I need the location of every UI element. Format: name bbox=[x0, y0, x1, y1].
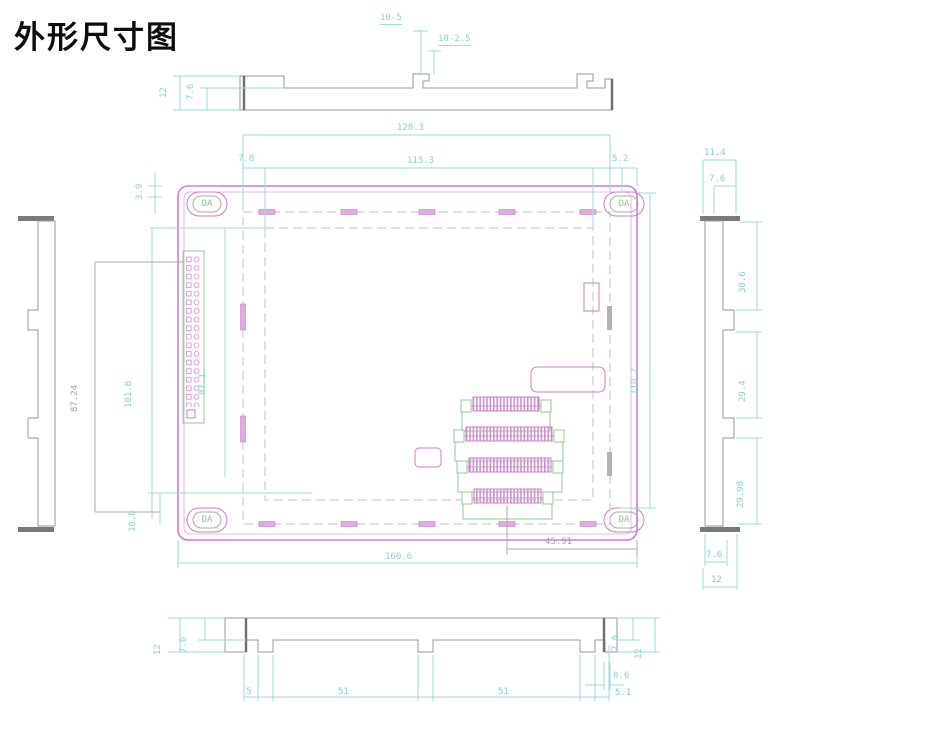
dim-bottom-tab-left: 5 bbox=[246, 687, 251, 697]
dim-front-connector-offset: 45.91 bbox=[545, 537, 572, 547]
dim-front-edge-left: 7.8 bbox=[238, 154, 254, 164]
mount-hole-label-br: DA bbox=[612, 515, 636, 525]
dim-top-height-total: 12 bbox=[159, 87, 169, 98]
left-profile-view bbox=[18, 216, 55, 532]
dim-right-lip-top: 7.6 bbox=[709, 174, 725, 184]
corner-mounting-holes bbox=[187, 192, 644, 532]
dimension-drawing: 外形尺寸图 bbox=[0, 0, 931, 735]
dim-front-corner-offset: 3.9 bbox=[135, 184, 145, 200]
dim-bottom-slot-b: 51 bbox=[498, 687, 509, 697]
dim-top-bar-height: 7.6 bbox=[186, 84, 196, 100]
dim-top-slot-note: 10-2.5 bbox=[438, 34, 471, 46]
dim-front-height-inner: 110.2 bbox=[630, 368, 640, 395]
right-profile-view bbox=[700, 160, 762, 590]
dim-right-segment-middle: 29.4 bbox=[738, 380, 748, 402]
dim-right-width-top: 11.4 bbox=[704, 148, 726, 158]
drawing-linework bbox=[0, 0, 931, 735]
dim-front-inner-height-a: 101.8 bbox=[124, 381, 134, 408]
fpc-connectors bbox=[454, 397, 564, 519]
front-dimension-lines bbox=[148, 135, 656, 568]
dim-top-tab-note: 10-5 bbox=[380, 13, 402, 25]
dim-front-width-inner: 115.3 bbox=[407, 156, 434, 166]
dim-bottom-height-right: 12 bbox=[634, 648, 644, 659]
dim-right-lip-bottom: 7.6 bbox=[706, 550, 722, 560]
dim-front-connector-height: 87.24 bbox=[70, 385, 80, 412]
front-dimension-lines-gray bbox=[95, 262, 637, 555]
dim-right-segment-upper: 30.6 bbox=[738, 271, 748, 293]
bottom-profile-view bbox=[168, 618, 660, 701]
dim-bottom-bar-left: 7.6 bbox=[179, 637, 189, 653]
dim-right-width-bottom: 12 bbox=[711, 575, 722, 585]
front-view bbox=[95, 135, 656, 568]
top-profile-view bbox=[173, 30, 612, 110]
dim-bottom-slot-a: 51 bbox=[338, 687, 349, 697]
mount-hole-label-tl: DA bbox=[195, 199, 219, 209]
mount-hole-label-bl: DA bbox=[195, 515, 219, 525]
dim-front-edge-bottom: 10.8 bbox=[128, 510, 138, 532]
dim-bottom-lip-right: 0.6 bbox=[613, 671, 629, 681]
solder-pads bbox=[241, 210, 597, 527]
dim-front-edge-right: 5.2 bbox=[612, 154, 628, 164]
dim-bottom-bar-right: 7.6 bbox=[611, 635, 621, 651]
pin-header-connector bbox=[183, 251, 204, 423]
dim-front-width-total: 160.6 bbox=[385, 552, 412, 562]
dim-front-width-top: 128.3 bbox=[397, 123, 424, 133]
dim-front-inner-height-b: 87.1 bbox=[198, 373, 208, 395]
dim-right-segment-lower: 29.98 bbox=[736, 481, 746, 508]
mount-hole-label-tr: DA bbox=[612, 199, 636, 209]
dim-bottom-height-left: 12 bbox=[153, 644, 163, 655]
dim-bottom-tab-right: 5.1 bbox=[615, 688, 631, 698]
